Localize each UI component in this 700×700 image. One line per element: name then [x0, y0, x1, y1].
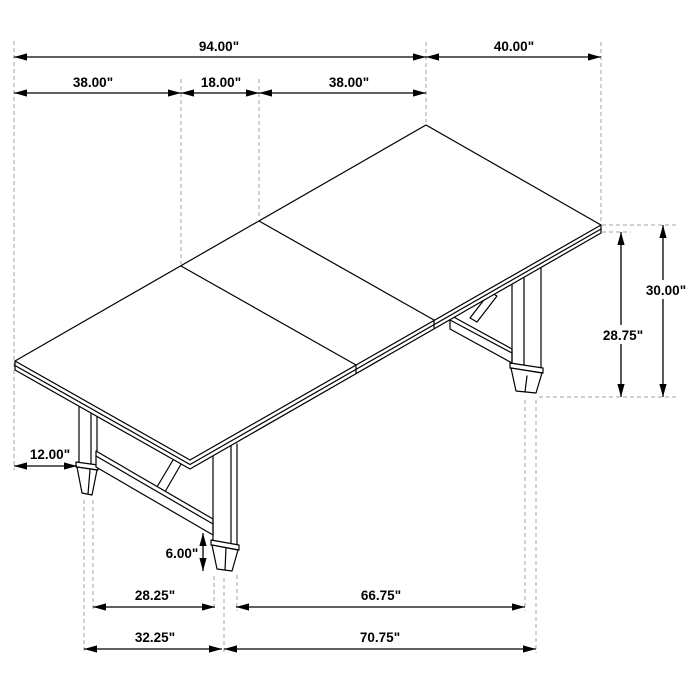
rear-left-leg — [76, 404, 98, 495]
dim-foot-height-label: 6.00" — [166, 546, 199, 561]
dim-base-inner-label: 66.75" — [361, 588, 401, 603]
dim-end-width-label: 40.00" — [494, 39, 534, 54]
tabletop-surface — [15, 125, 601, 469]
dim-right-section-label: 38.00" — [329, 75, 369, 90]
tabletop — [15, 125, 601, 469]
dim-left-section-label: 38.00" — [73, 75, 113, 90]
dim-underside-height-label: 28.75" — [603, 328, 643, 343]
dim-base-outer-label: 70.75" — [360, 630, 400, 645]
dim-leaf-section-label: 18.00" — [201, 75, 241, 90]
dim-left-feet-outer-label: 32.25" — [135, 630, 175, 645]
dim-overall-height-label: 30.00" — [646, 283, 686, 298]
rear-left-foot — [77, 467, 97, 495]
dim-leg-inset-label: 12.00" — [30, 447, 70, 462]
dim-overall-length-label: 94.00" — [199, 39, 239, 54]
diagram-canvas: 94.00" 40.00" 38.00" 18.00" 38.00" 12.00… — [0, 0, 700, 700]
dim-left-feet-inner-label: 28.25" — [135, 588, 175, 603]
right-trestle-stretcher — [450, 315, 512, 363]
front-left-leg — [211, 443, 239, 571]
table-dimension-drawing: 94.00" 40.00" 38.00" 18.00" 38.00" 12.00… — [0, 0, 700, 700]
